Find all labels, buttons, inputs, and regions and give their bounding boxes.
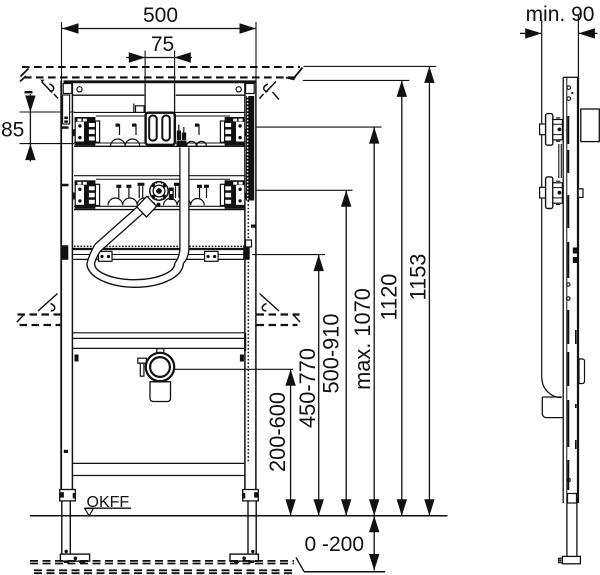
svg-text:1153: 1153: [406, 254, 431, 301]
svg-text:500-910: 500-910: [319, 314, 344, 394]
svg-text:min. 90: min. 90: [526, 3, 595, 26]
svg-text:75: 75: [151, 33, 174, 56]
svg-text:0 -200: 0 -200: [305, 533, 365, 556]
svg-text:450-770: 450-770: [295, 348, 320, 428]
svg-text:500: 500: [143, 4, 178, 27]
svg-text:200-600: 200-600: [265, 392, 290, 472]
svg-text:85: 85: [1, 119, 24, 142]
svg-text:max. 1070: max. 1070: [350, 288, 375, 390]
svg-text:1120: 1120: [377, 274, 402, 321]
